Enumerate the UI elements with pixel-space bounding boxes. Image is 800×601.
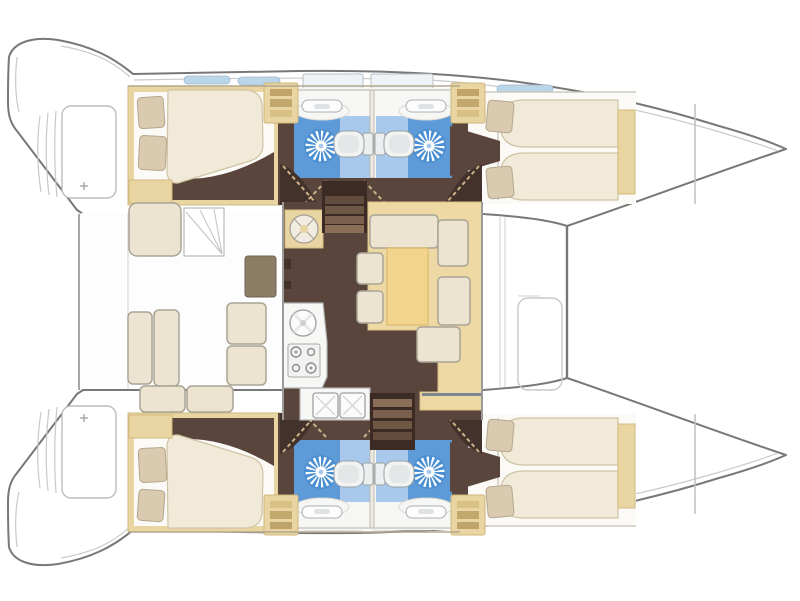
deck-steps: [184, 208, 224, 256]
floor-plan: [0, 0, 800, 601]
foredeck: [500, 217, 567, 390]
stool: [357, 253, 383, 284]
port-hull-interior: [128, 83, 695, 205]
deck-locker: [518, 298, 562, 390]
lounge-seat: [417, 327, 460, 362]
chart-table: [285, 210, 323, 248]
stairs-starboard-hull: [370, 393, 415, 450]
dining-table: [387, 248, 428, 325]
galley-round-sink: [290, 310, 316, 336]
helm-seat: [129, 203, 181, 256]
cockpit-bench: [128, 312, 152, 384]
cockpit-bench: [140, 386, 185, 412]
catamaran-floor-plan-drawing: [0, 0, 800, 601]
settee-cushion: [370, 215, 438, 248]
settee-cushion: [438, 277, 470, 325]
cockpit-table: [245, 256, 276, 297]
cockpit-bench: [154, 310, 179, 386]
galley-stove: [288, 344, 320, 377]
cockpit-bench: [227, 303, 266, 344]
cockpit-bench: [187, 386, 233, 412]
saloon: [283, 202, 482, 420]
stairs-port-hull: [322, 181, 367, 233]
settee-cushion: [438, 220, 468, 266]
cockpit-bench: [227, 346, 266, 385]
stool: [357, 291, 383, 323]
cockpit: [81, 203, 283, 412]
